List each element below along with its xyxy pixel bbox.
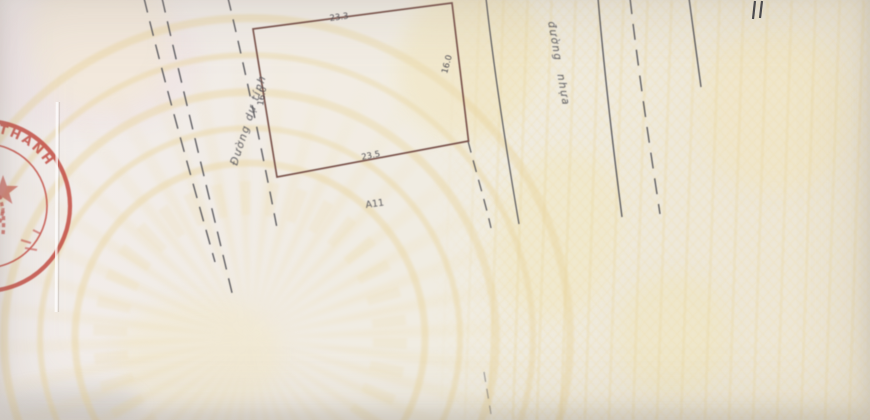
- road-dashed-line: [162, 0, 233, 297]
- road-dashed-line: [630, 0, 660, 214]
- road-solid-line-short: [689, 0, 701, 87]
- plot-boundary: [253, 3, 469, 177]
- sketch-svg: ẬN 2·THÀNH UBND: [0, 0, 870, 420]
- road-right: [598, 0, 701, 217]
- cadastral-sketch-photo: ẬN 2·THÀNH UBND: [0, 0, 870, 420]
- road-solid-line: [598, 0, 622, 217]
- parcel-label: A11: [365, 197, 385, 210]
- plot-dim-bottom: 23.5: [361, 150, 381, 163]
- paper-crease-line: [56, 102, 60, 312]
- road-label-middle: đường nhựa: [545, 20, 572, 107]
- double-tick-symbol-icon: [753, 1, 762, 19]
